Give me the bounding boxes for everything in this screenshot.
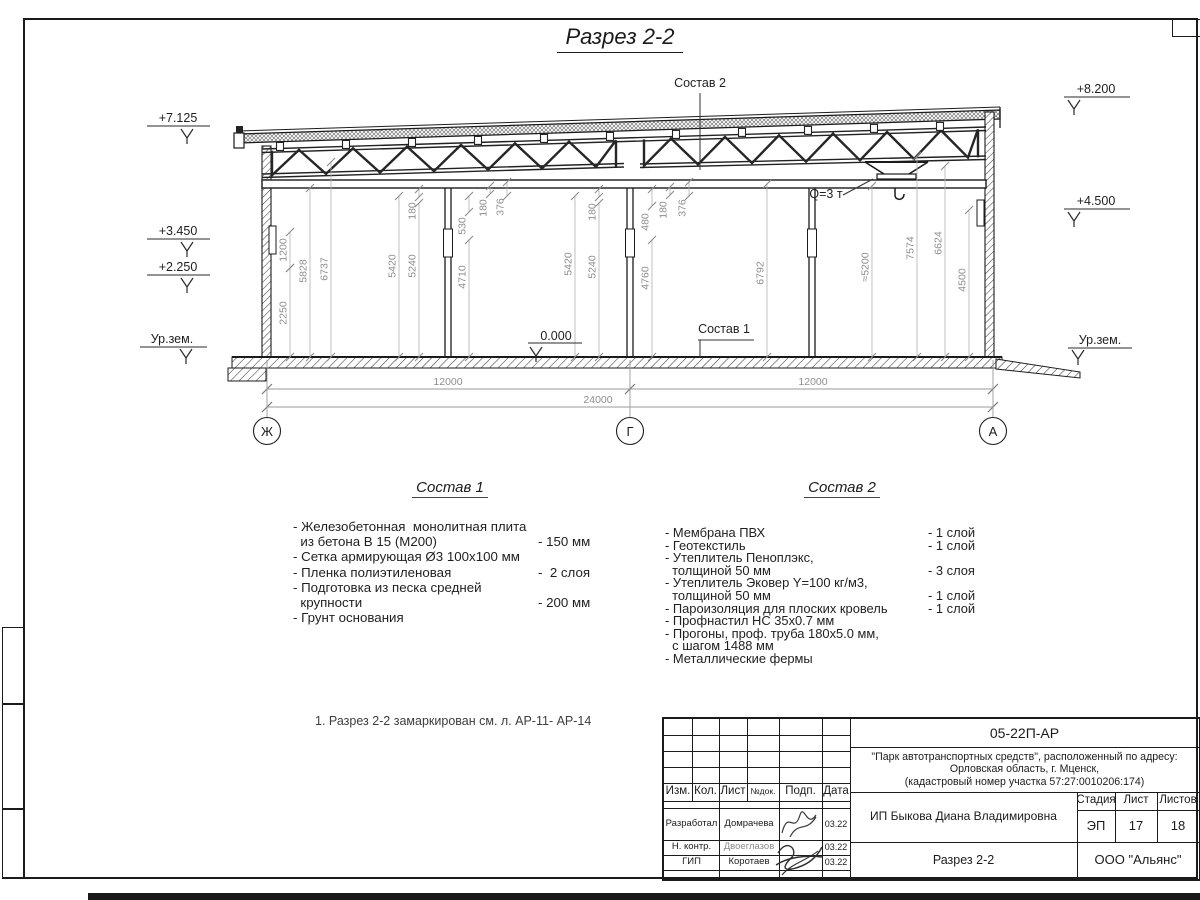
stamp-header-ndoc: №док. <box>747 783 779 801</box>
svg-text:530: 530 <box>457 217 469 235</box>
floor-slab <box>228 357 1080 381</box>
svg-text:24000: 24000 <box>583 394 612 406</box>
stamp-name-developer: Домрачева <box>719 808 779 840</box>
stamp-header-podp: Подп. <box>779 783 822 801</box>
drawing-sheet: Разрез 2-2 <box>0 0 1200 900</box>
svg-text:7574: 7574 <box>905 236 917 260</box>
svg-text:5420: 5420 <box>387 254 399 278</box>
stamp-date-developer: 03.22 <box>822 808 850 840</box>
sostav-item: - Пленка полиэтиленовая- 2 слоя <box>293 565 623 580</box>
svg-text:180: 180 <box>658 201 670 219</box>
svg-text:5420: 5420 <box>563 252 575 276</box>
svg-text:Ж: Ж <box>261 424 273 439</box>
svg-text:+2.250: +2.250 <box>159 260 198 274</box>
stamp-stage-value: ЭП <box>1077 810 1115 842</box>
scan-edge-strip <box>88 893 1200 900</box>
svg-text:0.000: 0.000 <box>540 329 571 343</box>
sostav1-title: Состав 1 <box>370 479 530 498</box>
sostav-item: - Сетка армирующая Ø3 100х100 мм <box>293 549 623 564</box>
stamp-project: "Парк автотранспортных средств", располо… <box>850 747 1199 792</box>
stamp-name-gip: Коротаев <box>719 855 779 870</box>
sostav-item: - Металлические фермы <box>665 653 1005 666</box>
stamp-stage-header: Стадия <box>1077 792 1115 810</box>
stamp-sheets-value: 18 <box>1157 810 1199 842</box>
stamp-header-kol: Кол. <box>692 783 719 801</box>
stamp-header-izm: Изм. <box>664 783 692 801</box>
svg-text:Q=3 т: Q=3 т <box>809 187 842 201</box>
svg-text:+4.500: +4.500 <box>1077 194 1116 208</box>
stamp-role-ncontrol: Н. контр. <box>665 840 718 855</box>
stamp-role-gip: ГИП <box>665 855 718 870</box>
svg-text:5240: 5240 <box>587 255 599 279</box>
stamp-divider <box>664 735 850 736</box>
svg-text:+8.200: +8.200 <box>1077 82 1116 96</box>
svg-text:12000: 12000 <box>433 376 462 388</box>
svg-text:4760: 4760 <box>640 266 652 290</box>
stamp-company: ООО "Альянс" <box>1077 842 1199 879</box>
columns <box>269 188 984 357</box>
svg-text:1200: 1200 <box>278 238 290 262</box>
stamp-date-ncontrol: 03.22 <box>822 840 850 855</box>
svg-text:12000: 12000 <box>798 376 827 388</box>
svg-text:6624: 6624 <box>933 231 945 255</box>
sostav-item: из бетона В 15 (М200)- 150 мм <box>293 534 623 549</box>
svg-text:Ур.зем.: Ур.зем. <box>151 332 193 346</box>
stamp-sheets-header: Листов <box>1157 792 1199 810</box>
svg-text:480: 480 <box>640 213 652 231</box>
svg-text:≈5200: ≈5200 <box>860 252 872 281</box>
svg-text:6792: 6792 <box>755 261 767 285</box>
svg-text:180: 180 <box>407 202 419 220</box>
stamp-divider <box>664 870 850 871</box>
stamp-divider <box>664 801 850 802</box>
stamp-name-ncontrol: Двоеглазов <box>719 840 779 855</box>
sostav-item: - Грунт основания <box>293 610 623 625</box>
sostav-item: - Железобетонная монолитная плита <box>293 519 623 534</box>
svg-text:Состав 2: Состав 2 <box>674 76 726 90</box>
svg-text:180: 180 <box>478 199 490 217</box>
svg-text:+3.450: +3.450 <box>159 224 198 238</box>
svg-text:+7.125: +7.125 <box>159 111 198 125</box>
svg-text:376: 376 <box>677 199 689 217</box>
svg-text:Ур.зем.: Ур.зем. <box>1079 333 1121 347</box>
svg-text:5240: 5240 <box>407 254 419 278</box>
stamp-doc-number: 05-22П-АР <box>850 719 1199 747</box>
stamp-sheet-value: 17 <box>1115 810 1157 842</box>
stamp-divider <box>664 767 850 768</box>
svg-text:4710: 4710 <box>457 265 469 289</box>
svg-text:А: А <box>989 424 998 439</box>
title-block: Изм. Кол. Лист №док. Подп. Дата Разработ… <box>662 717 1200 881</box>
sostav1-list: - Железобетонная монолитная плита из бет… <box>293 519 623 625</box>
right-wall <box>985 112 994 358</box>
svg-text:6737: 6737 <box>319 257 331 281</box>
svg-text:2250: 2250 <box>278 301 290 325</box>
stamp-header-data: Дата <box>822 783 850 801</box>
stamp-header-list: Лист <box>719 783 747 801</box>
svg-text:5828: 5828 <box>298 259 310 283</box>
svg-text:Состав 1: Состав 1 <box>698 322 750 336</box>
sostav-item: крупности- 200 мм <box>293 595 623 610</box>
sostav2-list: - Мембрана ПВХ- 1 слой- Геотекстиль- 1 с… <box>665 527 1005 666</box>
svg-text:376: 376 <box>495 198 507 216</box>
sheet-note: 1. Разрез 2-2 замаркирован см. л. АР-11-… <box>315 714 591 728</box>
stamp-date-gip: 03.22 <box>822 855 850 870</box>
stamp-role-developer: Разработал <box>665 808 718 840</box>
svg-text:180: 180 <box>587 203 599 221</box>
svg-text:4500: 4500 <box>957 268 969 292</box>
sostav-item: - Подготовка из песка средней <box>293 580 623 595</box>
stamp-sheet-header: Лист <box>1115 792 1157 810</box>
axis-bubbles: ЖГА <box>254 360 1007 445</box>
svg-text:Г: Г <box>626 424 633 439</box>
stamp-divider <box>664 751 850 752</box>
sostav2-title: Состав 2 <box>762 479 922 498</box>
stamp-sheet-title: Разрез 2-2 <box>850 842 1077 879</box>
tie-beam <box>262 180 986 188</box>
stamp-client: ИП Быкова Диана Владимировна <box>850 792 1077 842</box>
